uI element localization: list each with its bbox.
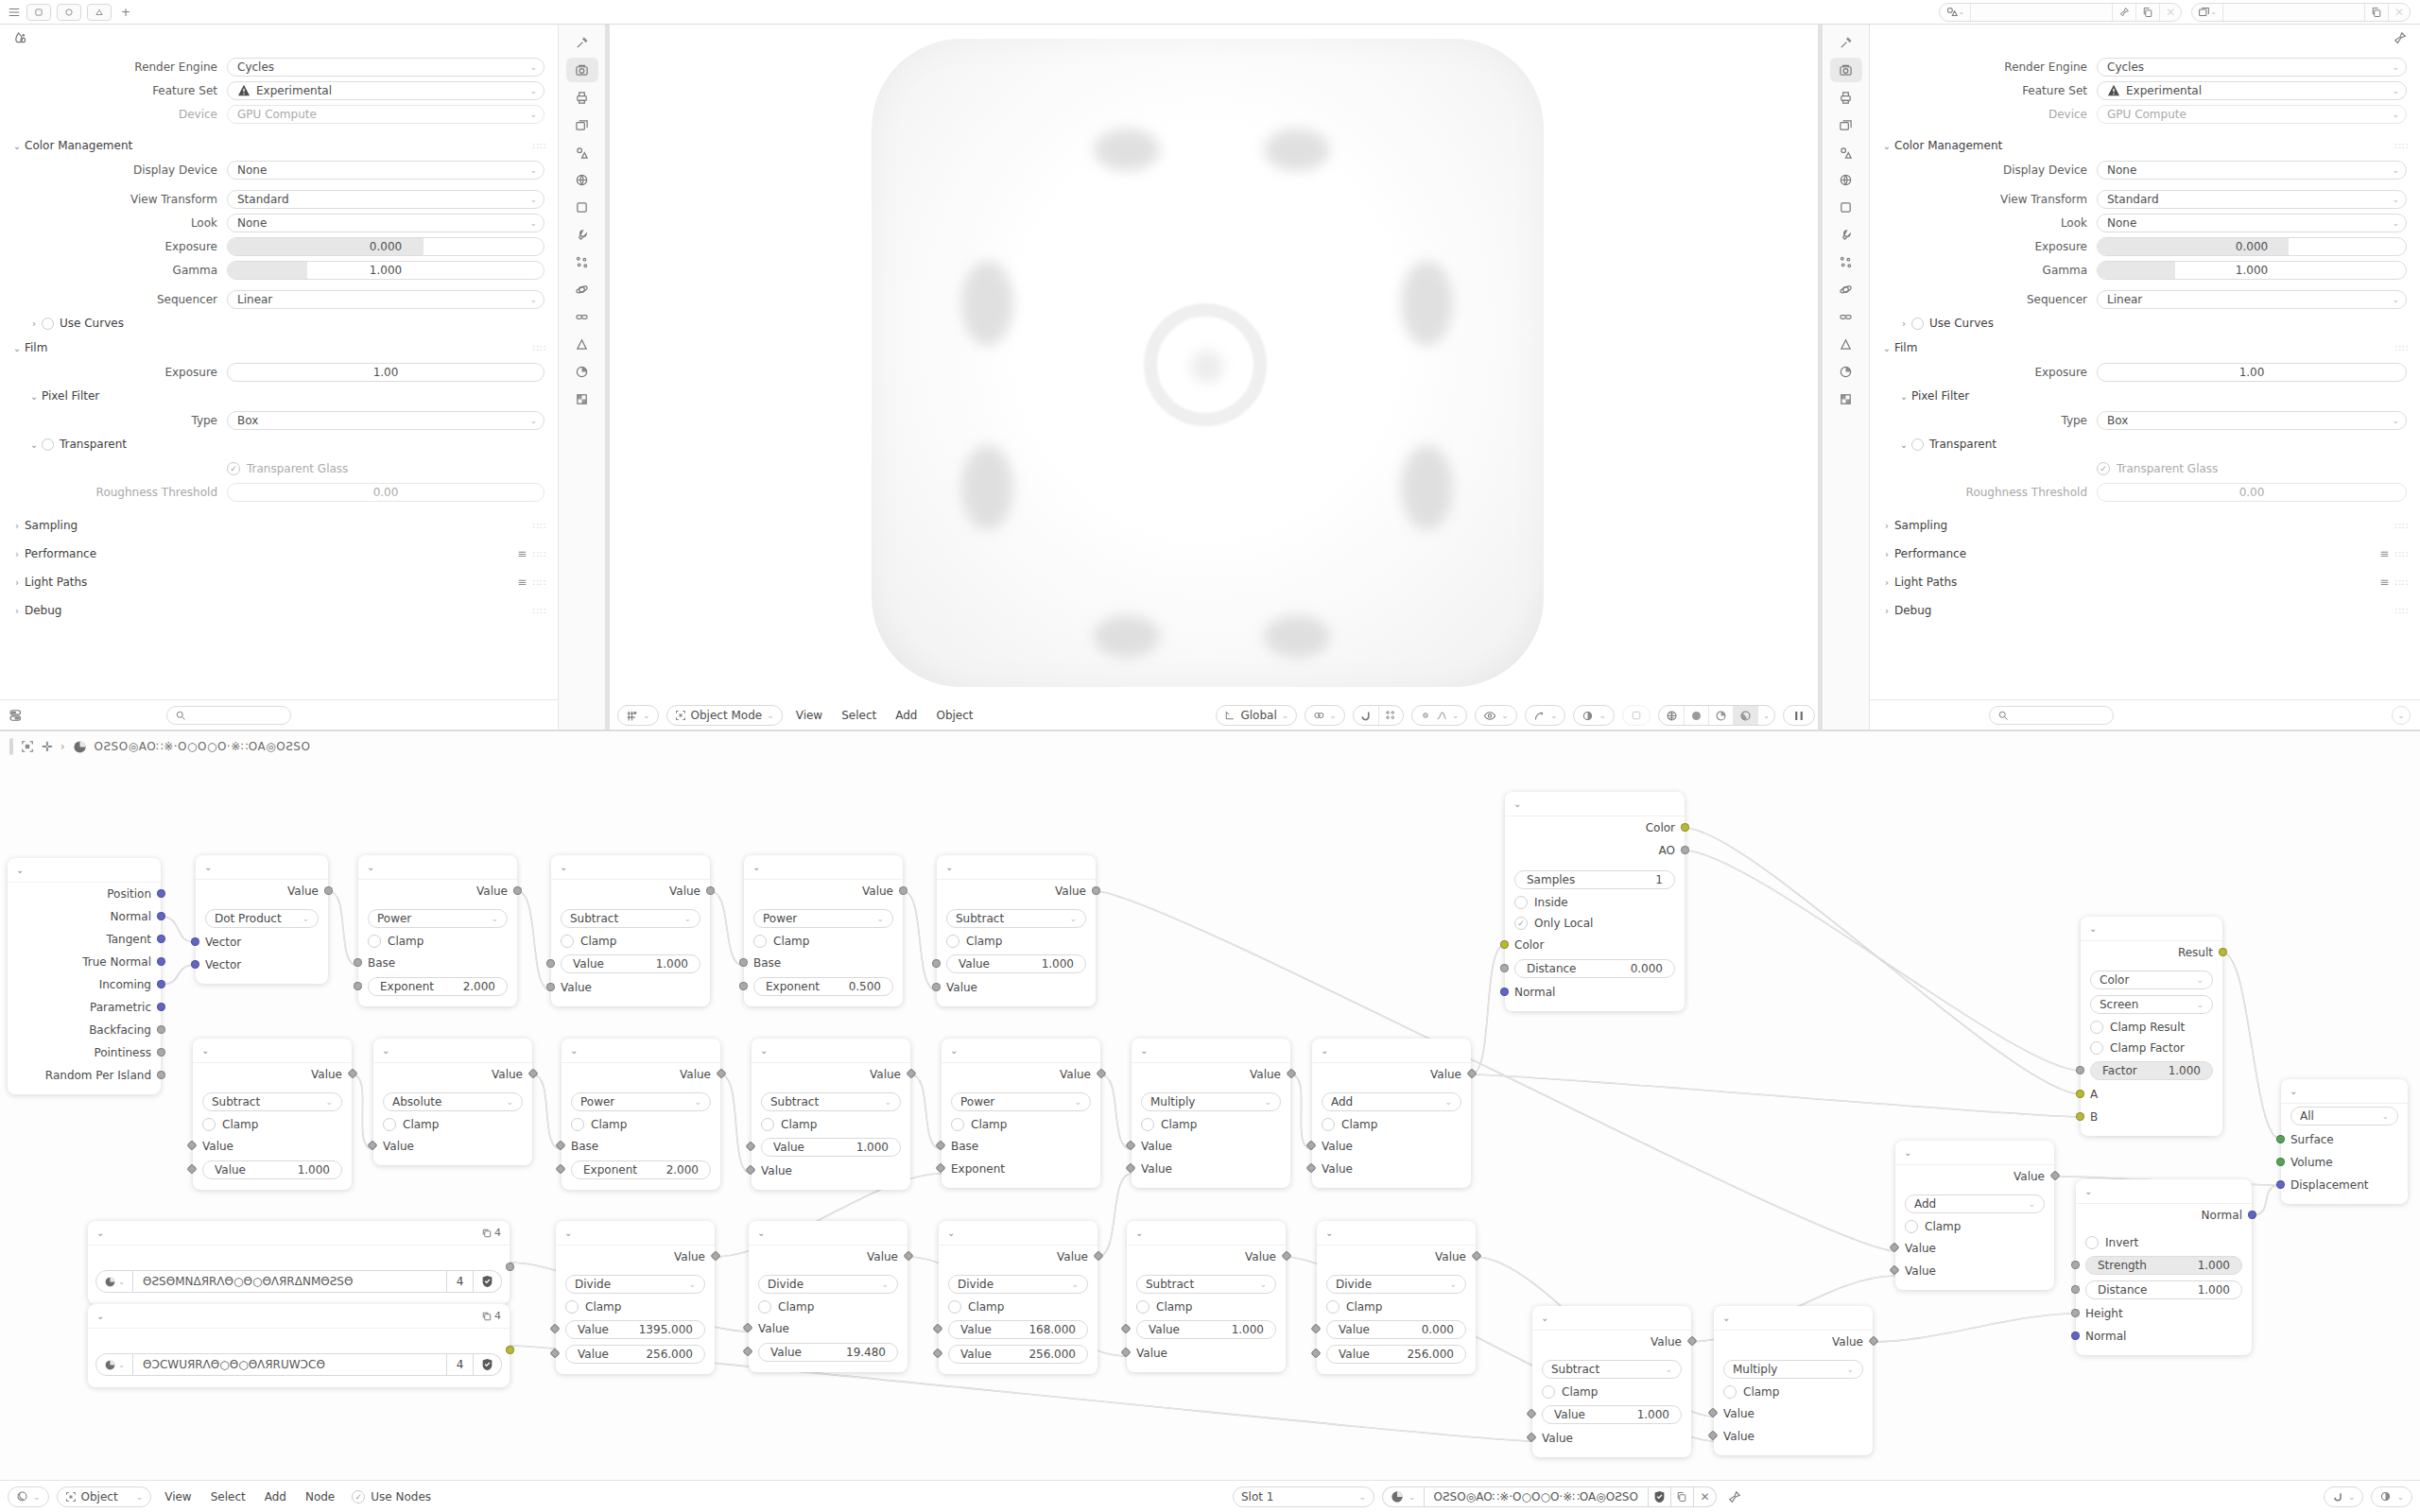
snap-grid-icon[interactable] xyxy=(1378,706,1403,725)
socket[interactable] xyxy=(549,1348,560,1358)
math-power-3[interactable]: ⌄ValuePower⌄ClampBaseExponent2.000 xyxy=(562,1039,720,1190)
render-engine-dropdown[interactable]: Cycles⌄ xyxy=(2097,58,2407,77)
socket[interactable] xyxy=(506,1346,514,1354)
collapse-node-chevron[interactable]: ⌄ xyxy=(96,1228,104,1238)
clamp-checkbox[interactable] xyxy=(1136,1300,1149,1314)
socket[interactable] xyxy=(546,959,555,968)
view-transform-dropdown[interactable]: Standard⌄ xyxy=(2097,190,2407,209)
socket[interactable] xyxy=(935,1162,945,1173)
shader-type-selector[interactable]: Object ⌄ xyxy=(57,1486,152,1507)
socket[interactable] xyxy=(1686,1335,1697,1346)
socket[interactable] xyxy=(549,1323,560,1333)
value-value-field[interactable]: Value256.000 xyxy=(565,1345,705,1364)
close-icon[interactable]: ✕ xyxy=(2388,4,2410,21)
pause-render-button[interactable] xyxy=(1783,705,1815,726)
editor-type-button[interactable]: ⌄ xyxy=(8,1486,49,1507)
math-multiply-1[interactable]: ⌄ValueMultiply⌄ClampValueValue xyxy=(1132,1039,1290,1188)
socket[interactable] xyxy=(903,1250,913,1261)
collapse-node-chevron[interactable]: ⌄ xyxy=(560,862,567,872)
pixel-filter-type-dropdown[interactable]: Box⌄ xyxy=(2097,411,2407,430)
socket[interactable] xyxy=(1466,1068,1477,1078)
browse-image-icon[interactable]: ⌄ xyxy=(95,1270,133,1293)
collapse-node-chevron[interactable]: ⌄ xyxy=(2089,923,2097,934)
properties-tab-modifiers-icon[interactable] xyxy=(566,222,598,247)
math-multiply-2[interactable]: ⌄ValueMultiply⌄ClampValueValue xyxy=(1714,1306,1873,1455)
collapse-node-chevron[interactable]: ⌄ xyxy=(947,1228,955,1238)
scrollbar-nub[interactable] xyxy=(9,738,13,755)
close-icon[interactable]: ✕ xyxy=(2159,4,2181,21)
collapse-node-chevron[interactable]: ⌄ xyxy=(570,1045,578,1056)
feature-set-dropdown[interactable]: Experimental⌄ xyxy=(227,81,544,100)
editor-type-icon[interactable] xyxy=(21,740,34,753)
menu-node[interactable]: Node xyxy=(300,1490,340,1503)
strength-value-field[interactable]: Strength1.000 xyxy=(2085,1256,2242,1275)
properties-tab-object-icon[interactable] xyxy=(1830,195,1862,219)
exposure-slider[interactable]: 0.000 xyxy=(2097,237,2407,256)
distance-value-field[interactable]: Distance0.000 xyxy=(1514,959,1675,978)
section-transparent[interactable]: ⌄Transparent xyxy=(0,432,558,456)
socket[interactable] xyxy=(2219,948,2227,956)
device-dropdown[interactable]: GPU Compute⌄ xyxy=(227,105,544,124)
collapse-node-chevron[interactable]: ⌄ xyxy=(2084,1186,2092,1196)
operation-dropdown[interactable]: Screen⌄ xyxy=(2090,995,2213,1014)
socket[interactable] xyxy=(527,1068,538,1078)
socket[interactable] xyxy=(1120,1323,1131,1333)
clamp-checkbox[interactable] xyxy=(946,935,959,948)
roughness-threshold-field[interactable]: 0.00 xyxy=(227,483,544,502)
menu-view[interactable]: View xyxy=(790,709,828,722)
collapse-node-chevron[interactable]: ⌄ xyxy=(752,862,760,872)
copy-icon[interactable] xyxy=(2364,4,2388,21)
collapse-node-chevron[interactable]: ⌄ xyxy=(950,1045,958,1056)
clamp-checkbox[interactable] xyxy=(1326,1300,1340,1314)
shading-dropdown[interactable]: ⌄ xyxy=(1757,706,1774,725)
socket[interactable] xyxy=(745,1141,755,1151)
properties-tab-material-icon[interactable] xyxy=(566,359,598,384)
math-subtract-1[interactable]: ⌄ValueSubtract⌄ClampValue1.000Value xyxy=(551,855,710,1006)
socket[interactable] xyxy=(354,982,362,990)
vector-math-dot-product[interactable]: ⌄ValueDot Product⌄VectorVector xyxy=(196,855,328,984)
display-device-dropdown[interactable]: None⌄ xyxy=(227,161,544,180)
shading-wireframe-button[interactable] xyxy=(1659,706,1684,725)
socket[interactable] xyxy=(1125,1140,1135,1150)
section-light-paths[interactable]: ›Light Paths ≡∷∷ xyxy=(1870,570,2420,594)
socket[interactable] xyxy=(186,1140,197,1150)
socket[interactable] xyxy=(2071,1309,2080,1317)
editor-type-button[interactable]: ⌄ xyxy=(617,705,659,726)
operation-dropdown[interactable]: Subtract⌄ xyxy=(1136,1275,1276,1294)
math-subtract-3[interactable]: ⌄ValueSubtract⌄ClampValueValue1.000 xyxy=(193,1039,352,1190)
distance-value-field[interactable]: Distance1.000 xyxy=(2085,1280,2242,1299)
socket[interactable] xyxy=(1471,1250,1481,1261)
properties-tab-constraints-icon[interactable] xyxy=(1830,304,1862,329)
socket[interactable] xyxy=(1310,1348,1321,1358)
section-debug[interactable]: ›Debug∷∷ xyxy=(1870,598,2420,623)
snap-magnet-button[interactable]: ⌄ xyxy=(2324,1486,2364,1507)
transparent-glass-checkbox[interactable]: ✓ xyxy=(2097,462,2110,475)
view-layer-selector[interactable]: ⌄ ✕ xyxy=(2191,3,2411,22)
properties-tab-tool-icon[interactable] xyxy=(1830,30,1862,55)
search-input[interactable] xyxy=(166,706,291,725)
render-engine-dropdown[interactable]: Cycles⌄ xyxy=(227,58,544,77)
menu-select[interactable]: Select xyxy=(205,1490,251,1503)
unlink-material-icon[interactable]: ✕ xyxy=(1694,1486,1717,1507)
section-performance[interactable]: ›Performance ≡∷∷ xyxy=(1870,541,2420,566)
proportional-editing-button[interactable]: ⌄ xyxy=(1411,705,1468,726)
look-dropdown[interactable]: None⌄ xyxy=(2097,214,2407,232)
socket[interactable] xyxy=(932,1323,942,1333)
socket[interactable] xyxy=(1286,1068,1296,1078)
xray-toggle-button[interactable] xyxy=(1622,705,1651,726)
image-users-count[interactable]: 4 xyxy=(447,1270,474,1293)
socket[interactable] xyxy=(906,1068,916,1078)
socket[interactable] xyxy=(745,1164,755,1175)
copy-icon[interactable] xyxy=(2135,4,2159,21)
exponent-value-field[interactable]: Exponent2.000 xyxy=(368,977,508,996)
math-subtract-5[interactable]: ⌄ValueSubtract⌄ClampValue1.000Value xyxy=(1127,1221,1286,1372)
section-use-curves[interactable]: ›Use Curves xyxy=(1870,311,2420,335)
socket[interactable] xyxy=(2076,1066,2084,1074)
math-divide-4[interactable]: ⌄ValueDivide⌄ClampValue0.000Value256.000 xyxy=(1317,1221,1476,1374)
socket[interactable] xyxy=(2049,1170,2060,1180)
clamp-checkbox[interactable] xyxy=(951,1118,964,1131)
value-value-field[interactable]: Value0.000 xyxy=(1326,1320,1466,1339)
collapse-node-chevron[interactable]: ⌄ xyxy=(2290,1086,2297,1096)
math-divide-3[interactable]: ⌄ValueDivide⌄ClampValue168.000Value256.0… xyxy=(939,1221,1098,1374)
view-layer-name-field[interactable] xyxy=(2222,4,2364,21)
math-divide-2[interactable]: ⌄ValueDivide⌄ClampValueValue19.480 xyxy=(749,1221,907,1372)
value-value-field[interactable]: Value1.000 xyxy=(202,1160,342,1179)
clamp-checkbox[interactable] xyxy=(561,935,574,948)
socket[interactable] xyxy=(1681,823,1689,832)
operation-dropdown[interactable]: Absolute⌄ xyxy=(383,1092,523,1111)
operation-dropdown[interactable]: Power⌄ xyxy=(571,1092,711,1111)
operation-dropdown[interactable]: Subtract⌄ xyxy=(1542,1360,1682,1379)
socket[interactable] xyxy=(742,1346,752,1356)
menu-add[interactable]: Add xyxy=(259,1490,292,1503)
workspace-tab-2[interactable] xyxy=(57,4,81,21)
math-power-1[interactable]: ⌄ValuePower⌄ClampBaseExponent2.000 xyxy=(358,855,517,1006)
socket[interactable] xyxy=(1305,1162,1316,1173)
socket[interactable] xyxy=(1889,1264,1899,1275)
operation-dropdown[interactable]: Divide⌄ xyxy=(1326,1275,1466,1294)
operation-dropdown[interactable]: Color⌄ xyxy=(2090,971,2213,989)
properties-tab-physics-icon[interactable] xyxy=(566,277,598,301)
socket[interactable] xyxy=(1707,1407,1718,1417)
mix-color-node[interactable]: ⌄ResultColor⌄Screen⌄Clamp ResultClamp Fa… xyxy=(2081,917,2222,1136)
properties-tab-constraints-icon[interactable] xyxy=(566,304,598,329)
fake-user-shield-icon[interactable] xyxy=(1649,1486,1671,1507)
socket[interactable] xyxy=(157,1048,165,1057)
properties-tab-world-icon[interactable] xyxy=(566,167,598,192)
properties-tab-object-icon[interactable] xyxy=(566,195,598,219)
properties-tab-view-layer-icon[interactable] xyxy=(566,112,598,137)
socket[interactable] xyxy=(932,983,941,991)
math-subtract-4[interactable]: ⌄ValueSubtract⌄ClampValue1.000Value xyxy=(752,1039,910,1190)
operation-dropdown[interactable]: Add⌄ xyxy=(1905,1194,2045,1213)
section-color-management[interactable]: ⌄Color Management∷∷ xyxy=(1870,133,2420,158)
properties-tab-modifiers-icon[interactable] xyxy=(1830,222,1862,247)
operation-dropdown[interactable]: Multiply⌄ xyxy=(1141,1092,1281,1111)
socket[interactable] xyxy=(1526,1432,1536,1442)
properties-tab-render-icon[interactable] xyxy=(1830,58,1862,82)
roughness-threshold-field[interactable]: 0.00 xyxy=(2097,483,2407,502)
section-pixel-filter[interactable]: ⌄Pixel Filter xyxy=(1870,384,2420,408)
operation-dropdown[interactable]: Subtract⌄ xyxy=(946,909,1086,928)
socket[interactable] xyxy=(932,1348,942,1358)
operation-dropdown[interactable]: Divide⌄ xyxy=(565,1275,705,1294)
properties-tab-texture-icon[interactable] xyxy=(566,387,598,411)
socket[interactable] xyxy=(1526,1408,1536,1418)
socket[interactable] xyxy=(1681,846,1689,854)
workspace-tab-3[interactable] xyxy=(87,4,112,21)
collapse-node-chevron[interactable]: ⌄ xyxy=(16,865,24,875)
fake-user-shield-icon[interactable] xyxy=(474,1353,502,1376)
socket[interactable] xyxy=(706,886,715,895)
section-sampling[interactable]: ›Sampling∷∷ xyxy=(0,513,558,538)
collapse-node-chevron[interactable]: ⌄ xyxy=(760,1045,768,1056)
collapse-node-chevron[interactable]: ⌄ xyxy=(201,1045,209,1056)
section-use-curves[interactable]: ›Use Curves xyxy=(0,311,558,335)
node-canvas[interactable]: ⌄PositionNormalTangentTrue NormalIncomin… xyxy=(0,731,2420,1512)
geometry-node[interactable]: ⌄PositionNormalTangentTrue NormalIncomin… xyxy=(8,858,161,1094)
transform-orientation-selector[interactable]: Global ⌄ xyxy=(1216,705,1297,726)
math-absolute[interactable]: ⌄ValueAbsolute⌄ClampValue xyxy=(373,1039,532,1165)
image-name-field[interactable]: ΘƆCWUЯRΛΘ○Θ○ΘΛЯRUWƆCΘ xyxy=(133,1353,447,1376)
collapse-node-chevron[interactable]: ⌄ xyxy=(1513,799,1521,809)
socket[interactable] xyxy=(354,958,362,967)
section-performance[interactable]: ›Performance ≡∷∷ xyxy=(0,541,558,566)
collapse-node-chevron[interactable]: ⌄ xyxy=(1541,1313,1548,1323)
sequencer-dropdown[interactable]: Linear⌄ xyxy=(2097,290,2407,309)
socket[interactable] xyxy=(1707,1430,1718,1440)
properties-editor-icon[interactable] xyxy=(13,31,27,45)
app-menu-icon[interactable] xyxy=(8,6,21,19)
socket[interactable] xyxy=(1092,886,1100,895)
properties-tab-render-icon[interactable] xyxy=(566,58,598,82)
operation-dropdown[interactable]: Power⌄ xyxy=(753,909,893,928)
socket[interactable] xyxy=(1500,988,1509,996)
invert-checkbox[interactable] xyxy=(2085,1236,2099,1249)
image-texture-2[interactable]: ⌄4⌄ΘƆCWUЯRΛΘ○Θ○ΘΛЯRUWƆCΘ4 xyxy=(88,1304,510,1387)
collapse-node-chevron[interactable]: ⌄ xyxy=(757,1228,765,1238)
value-value-field[interactable]: Value168.000 xyxy=(948,1320,1088,1339)
socket[interactable] xyxy=(710,1250,720,1261)
socket[interactable] xyxy=(742,1322,752,1332)
mode-selector[interactable]: Object Mode ⌄ xyxy=(666,705,783,726)
socket[interactable] xyxy=(935,1140,945,1150)
section-film[interactable]: ⌄Film∷∷ xyxy=(0,335,558,360)
menu-object[interactable]: Object xyxy=(930,709,978,722)
pin-icon[interactable] xyxy=(2394,31,2407,44)
clamp-checkbox[interactable] xyxy=(1141,1118,1154,1131)
exponent-value-field[interactable]: Exponent0.500 xyxy=(753,977,893,996)
operation-dropdown[interactable]: Subtract⌄ xyxy=(202,1092,342,1111)
socket[interactable] xyxy=(716,1068,726,1078)
socket[interactable] xyxy=(191,937,199,946)
properties-tab-tool-icon[interactable] xyxy=(566,30,598,55)
value-value-field[interactable]: Value256.000 xyxy=(1326,1345,1466,1364)
workspace-tab-1[interactable] xyxy=(26,4,51,21)
properties-tab-output-icon[interactable] xyxy=(1830,85,1862,110)
section-debug[interactable]: ›Debug∷∷ xyxy=(0,598,558,623)
properties-tab-texture-icon[interactable] xyxy=(1830,387,1862,411)
samples-value-field[interactable]: Samples1 xyxy=(1514,870,1675,889)
collapse-node-chevron[interactable]: ⌄ xyxy=(1321,1045,1328,1056)
material-slot-selector[interactable]: Slot 1⌄ xyxy=(1233,1486,1374,1507)
socket[interactable] xyxy=(1889,1242,1899,1252)
operation-dropdown[interactable]: Dot Product⌄ xyxy=(205,909,319,928)
socket[interactable] xyxy=(324,886,333,895)
value-value-field[interactable]: Value1.000 xyxy=(1136,1320,1276,1339)
pin-icon[interactable] xyxy=(2112,4,2135,21)
socket[interactable] xyxy=(157,889,165,898)
socket[interactable] xyxy=(1500,940,1509,949)
properties-tab-object-data-icon[interactable] xyxy=(566,332,598,356)
math-add-1[interactable]: ⌄ValueAdd⌄ClampValueValue xyxy=(1312,1039,1471,1188)
clamp-checkbox[interactable] xyxy=(202,1118,216,1131)
value-value-field[interactable]: Value1.000 xyxy=(761,1138,901,1157)
properties-tab-world-icon[interactable] xyxy=(1830,167,1862,192)
clamp-checkbox[interactable] xyxy=(761,1118,774,1131)
exposure-slider[interactable]: 0.000 xyxy=(227,237,544,256)
math-subtract-6[interactable]: ⌄ValueSubtract⌄ClampValue1.000Value xyxy=(1532,1306,1691,1457)
collapse-node-chevron[interactable]: ⌄ xyxy=(1722,1313,1730,1323)
socket[interactable] xyxy=(157,980,165,988)
socket[interactable] xyxy=(157,957,165,966)
value-value-field[interactable]: Value1.000 xyxy=(946,954,1086,973)
look-dropdown[interactable]: None⌄ xyxy=(227,214,544,232)
socket[interactable] xyxy=(347,1068,357,1078)
gamma-slider[interactable]: 1.000 xyxy=(2097,261,2407,280)
scene-selector[interactable]: ⌄ ✕ xyxy=(1939,3,2182,22)
transparent-glass-checkbox[interactable]: ✓ xyxy=(227,462,240,475)
socket[interactable] xyxy=(2276,1135,2285,1143)
clamp-factor-checkbox[interactable] xyxy=(2090,1041,2103,1055)
film-exposure-field[interactable]: 1.00 xyxy=(2097,363,2407,382)
properties-tab-scene-icon[interactable] xyxy=(1830,140,1862,164)
collapse-node-chevron[interactable]: ⌄ xyxy=(204,862,212,872)
search-input[interactable] xyxy=(1989,706,2114,725)
section-film[interactable]: ⌄Film∷∷ xyxy=(1870,335,2420,360)
gamma-slider[interactable]: 1.000 xyxy=(227,261,544,280)
operation-dropdown[interactable]: Power⌄ xyxy=(951,1092,1091,1111)
device-dropdown[interactable]: GPU Compute⌄ xyxy=(2097,105,2407,124)
socket[interactable] xyxy=(546,983,555,991)
operation-dropdown[interactable]: Add⌄ xyxy=(1322,1092,1461,1111)
socket[interactable] xyxy=(513,886,522,895)
clamp-checkbox[interactable] xyxy=(948,1300,961,1314)
copy-material-icon[interactable] xyxy=(1671,1486,1694,1507)
sequencer-dropdown[interactable]: Linear⌄ xyxy=(227,290,544,309)
snapping-icon[interactable] xyxy=(1354,706,1378,725)
socket[interactable] xyxy=(1096,1068,1106,1078)
clamp-checkbox[interactable] xyxy=(571,1118,584,1131)
math-divide-1[interactable]: ⌄ValueDivide⌄ClampValue1395.000Value256.… xyxy=(556,1221,715,1374)
socket[interactable] xyxy=(555,1163,565,1174)
pin-icon[interactable] xyxy=(1728,1490,1741,1503)
socket[interactable] xyxy=(1305,1140,1316,1150)
add-icon[interactable]: ✛ xyxy=(42,739,53,754)
value-value-field[interactable]: Value256.000 xyxy=(948,1345,1088,1364)
clamp-result-checkbox[interactable] xyxy=(2090,1021,2103,1034)
use-nodes-checkbox[interactable]: ✓ xyxy=(352,1490,365,1503)
menu-view[interactable]: View xyxy=(159,1490,197,1503)
gizmos-button[interactable]: ⌄ xyxy=(1525,705,1566,726)
overlays-toggle-button[interactable]: ⌄ xyxy=(1573,705,1615,726)
socket[interactable] xyxy=(1310,1323,1321,1333)
socket[interactable] xyxy=(1868,1335,1878,1346)
bump-node[interactable]: ⌄NormalInvertStrength1.000Distance1.000H… xyxy=(2076,1179,2252,1355)
filter-options-icon[interactable] xyxy=(9,709,25,722)
material-output-node[interactable]: ⌄All⌄SurfaceVolumeDisplacement xyxy=(2281,1079,2408,1204)
shading-rendered-button[interactable] xyxy=(1733,706,1757,725)
operation-dropdown[interactable]: Power⌄ xyxy=(368,909,508,928)
shading-solid-button[interactable] xyxy=(1684,706,1708,725)
image-users-count[interactable]: 4 xyxy=(447,1353,474,1376)
menu-add[interactable]: Add xyxy=(890,709,923,722)
socket[interactable] xyxy=(157,912,165,920)
collapse-node-chevron[interactable]: ⌄ xyxy=(1140,1045,1148,1056)
section-color-management[interactable]: ⌄Color Management∷∷ xyxy=(0,133,558,158)
socket[interactable] xyxy=(2076,1090,2084,1098)
socket[interactable] xyxy=(739,958,748,967)
math-power-2[interactable]: ⌄ValuePower⌄ClampBaseExponent0.500 xyxy=(744,855,903,1006)
socket[interactable] xyxy=(2248,1211,2256,1219)
section-sampling[interactable]: ›Sampling∷∷ xyxy=(1870,513,2420,538)
exponent-value-field[interactable]: Exponent2.000 xyxy=(571,1160,711,1179)
clamp-checkbox[interactable] xyxy=(1723,1385,1737,1399)
fake-user-shield-icon[interactable] xyxy=(474,1270,502,1293)
socket[interactable] xyxy=(186,1163,197,1174)
clamp-checkbox[interactable] xyxy=(368,935,381,948)
socket[interactable] xyxy=(157,1025,165,1034)
collapse-node-chevron[interactable]: ⌄ xyxy=(382,1045,389,1056)
socket[interactable] xyxy=(555,1140,565,1150)
properties-tab-object-data-icon[interactable] xyxy=(1830,332,1862,356)
math-subtract-2[interactable]: ⌄ValueSubtract⌄ClampValue1.000Value xyxy=(937,855,1096,1006)
clamp-checkbox[interactable] xyxy=(1322,1118,1335,1131)
properties-tab-material-icon[interactable] xyxy=(1830,359,1862,384)
section-pixel-filter[interactable]: ⌄Pixel Filter xyxy=(0,384,558,408)
collapse-node-chevron[interactable]: ⌄ xyxy=(1325,1228,1333,1238)
socket[interactable] xyxy=(899,886,907,895)
pixel-filter-type-dropdown[interactable]: Box⌄ xyxy=(227,411,544,430)
snap-toggle-button[interactable]: ⌄ xyxy=(1305,705,1345,726)
operation-dropdown[interactable]: Subtract⌄ xyxy=(561,909,700,928)
display-device-dropdown[interactable]: None⌄ xyxy=(2097,161,2407,180)
math-power-4[interactable]: ⌄ValuePower⌄ClampBaseExponent xyxy=(942,1039,1100,1188)
clamp-checkbox[interactable] xyxy=(383,1118,396,1131)
math-add-2[interactable]: ⌄ValueAdd⌄ClampValueValue xyxy=(1895,1141,2054,1290)
shading-material-button[interactable] xyxy=(1708,706,1733,725)
socket[interactable] xyxy=(157,1003,165,1011)
socket[interactable] xyxy=(1125,1162,1135,1173)
collapse-node-chevron[interactable]: ⌄ xyxy=(1904,1147,1911,1158)
collapse-node-chevron[interactable]: ⌄ xyxy=(1135,1228,1143,1238)
image-name-field[interactable]: ΘƧSΘMNΔЯRΛΘ○Θ○ΘΛЯRΔNMΘƧSΘ xyxy=(133,1270,447,1293)
value-value-field[interactable]: Value1.000 xyxy=(1542,1405,1682,1424)
collapse-node-chevron[interactable]: ⌄ xyxy=(96,1311,104,1321)
material-name-field[interactable]: OƧSO◎AO∷※·O○O○O·※∷OA◎OƧSO xyxy=(1424,1486,1649,1507)
collapse-node-chevron[interactable]: ⌄ xyxy=(564,1228,572,1238)
section-transparent[interactable]: ⌄Transparent xyxy=(1870,432,2420,456)
value-value-field[interactable]: Value19.480 xyxy=(758,1343,898,1362)
properties-tab-particles-icon[interactable] xyxy=(566,249,598,274)
properties-tab-scene-icon[interactable] xyxy=(566,140,598,164)
inside-checkbox[interactable] xyxy=(1514,896,1528,909)
properties-tab-physics-icon[interactable] xyxy=(1830,277,1862,301)
